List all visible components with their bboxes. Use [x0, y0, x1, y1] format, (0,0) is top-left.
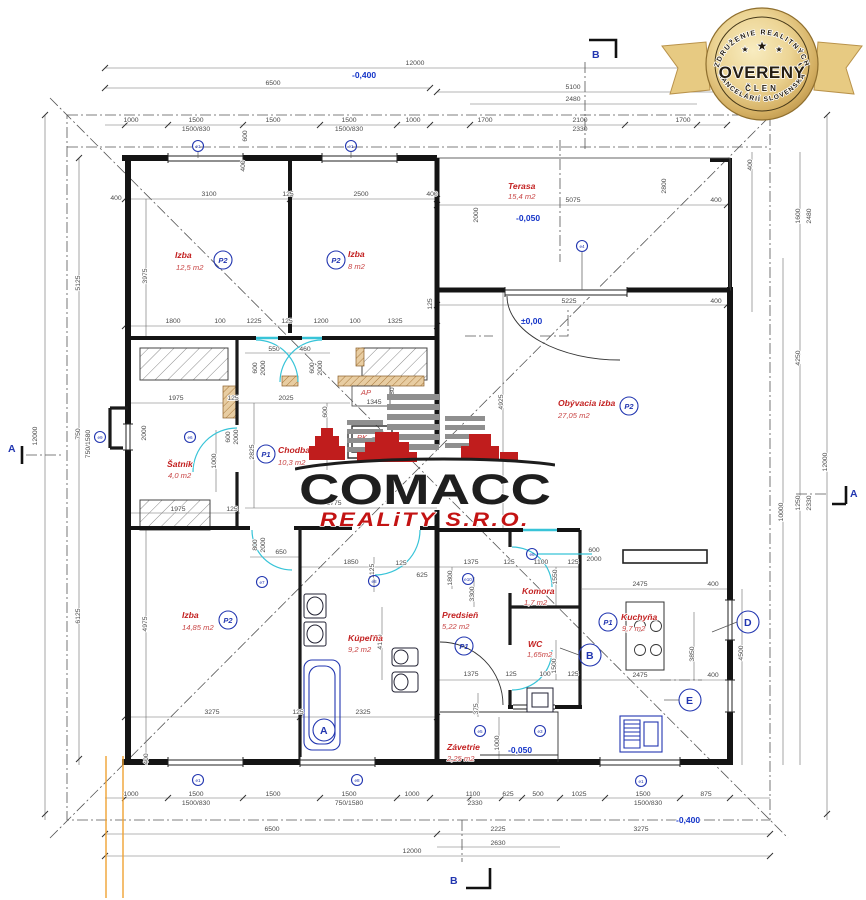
drawing-primitive [560, 648, 579, 655]
drawing-primitive [710, 160, 730, 290]
room-area: 1,65m2 [527, 650, 553, 659]
dim-label: 12000 [822, 452, 829, 471]
dim-label: 1500 [551, 658, 558, 673]
drawing-primitive [387, 394, 439, 400]
drawing-primitive [814, 42, 862, 94]
dim-label: 400 [426, 191, 438, 198]
drawing-primitive [623, 550, 707, 563]
dim-label: 375 [473, 703, 480, 715]
dim-label: 625 [502, 791, 514, 798]
drawing-primitive [365, 442, 409, 452]
room-area: 15,4 m2 [508, 192, 536, 201]
dim-label: 600 [252, 362, 259, 374]
drawing-primitive: e7 [259, 580, 265, 585]
dim-label: 1000 [123, 117, 138, 124]
dim-label: 2330 [467, 800, 482, 807]
badge-sub: ČLEN [745, 84, 779, 93]
dim-label: 1500/830 [634, 800, 663, 807]
dim-label: 3100 [201, 191, 216, 198]
dim-label: 2000 [473, 207, 480, 222]
dim-label: 400 [707, 581, 719, 588]
dim-label: 2475 [632, 581, 647, 588]
dim-label: 4250 [795, 350, 802, 365]
dim-label: 600 [242, 130, 249, 142]
dim-label: 1375 [463, 671, 478, 678]
dim-label: 1800 [165, 318, 180, 325]
drawing-primitive [437, 158, 730, 290]
room-area: 8 m2 [348, 262, 366, 271]
dim-label: 1500 [265, 117, 280, 124]
dim-label: 12000 [406, 60, 425, 67]
dim-label: 1500 [341, 117, 356, 124]
drawing-primitive: e8 [371, 579, 377, 584]
dim-label: 5075 [565, 197, 580, 204]
dim-label: 4500 [738, 645, 745, 660]
dim-label: 6500 [265, 80, 280, 87]
room-name: WC [528, 639, 543, 649]
comacc-watermark: COMACC REALiTY S.R.O. [295, 372, 555, 532]
drawing-primitive: e1 [348, 144, 354, 149]
dim-label: 2000 [260, 537, 267, 552]
room-area: 12,5 m2 [176, 263, 204, 272]
section-a-tub: A [320, 725, 328, 737]
dim-label: 400 [240, 160, 247, 172]
room-mark: P2 [624, 402, 634, 411]
dim-label: 6125 [75, 608, 82, 623]
drawing-primitive: e9 [97, 435, 103, 440]
dim-label: 125 [567, 559, 579, 566]
drawing-primitive [140, 500, 210, 530]
dim-label: 2100 [572, 117, 587, 124]
dim-label: 1850 [343, 559, 358, 566]
drawing-primitive [309, 446, 345, 460]
level-mark: -0,400 [676, 815, 700, 825]
room-area: 9,2 m2 [348, 645, 372, 654]
drawing-primitive [356, 348, 364, 366]
dim-label: 100 [539, 671, 551, 678]
dim-label: 650 [275, 549, 287, 556]
drawing-primitive [662, 42, 710, 94]
dim-label: 125 [281, 318, 293, 325]
dim-label: 2330 [806, 495, 813, 510]
dim-label: 5225 [561, 298, 576, 305]
dim-label: 1100 [534, 559, 549, 566]
dim-label: 1000 [404, 791, 419, 798]
room-mark: P2 [331, 256, 341, 265]
drawing-primitive [394, 674, 408, 690]
dim-label: 400 [110, 195, 122, 202]
drawing-primitive [387, 404, 439, 410]
dim-label: 1500 [188, 117, 203, 124]
drawing-primitive: e1 [195, 144, 201, 149]
dim-label: 500 [532, 791, 544, 798]
dim-label: 125 [226, 506, 238, 513]
drawing-primitive [307, 597, 323, 615]
drawing-primitive [532, 693, 548, 707]
room-area: 4,0 m2 [168, 471, 192, 480]
dim-label: 10000 [778, 502, 785, 521]
dim-label: 1600 [795, 208, 802, 223]
dim-label: 1500 [265, 791, 280, 798]
dim-label: 125 [227, 395, 239, 402]
room-name: Kúpeľňa [348, 633, 383, 643]
level-mark: -0,050 [508, 745, 532, 755]
dim-label: 125 [427, 298, 434, 310]
room-name: Závetrie [446, 742, 480, 752]
badge-word: OVERENÝ [719, 63, 806, 82]
section-b-interior: B [586, 650, 594, 662]
section-e-mark: E [686, 695, 693, 707]
drawing-primitive: e1 [195, 778, 201, 783]
dim-label: 1100 [466, 791, 481, 798]
room-name: Izba [348, 249, 365, 259]
drawing-primitive: ★ [741, 45, 748, 54]
drawing-primitive [832, 486, 846, 504]
dim-label: 2000 [141, 425, 148, 440]
dim-label: 125 [395, 560, 407, 567]
dim-label: 1000 [405, 117, 420, 124]
dim-label: 1025 [571, 791, 586, 798]
drawing-primitive [315, 436, 339, 446]
drawing-primitive [644, 722, 658, 746]
drawing-primitive [507, 296, 620, 360]
level-mark: -0,400 [352, 70, 376, 80]
dim-label: 3975 [142, 268, 149, 283]
drawing-primitive [123, 424, 133, 450]
dim-label: 5100 [565, 84, 580, 91]
room-area: 9,7 m2 [622, 624, 646, 633]
level-mark: ±0,00 [521, 316, 542, 326]
drawing-primitive [375, 432, 399, 442]
dim-label: 2330 [572, 126, 587, 133]
dim-label: 12000 [32, 426, 39, 445]
dim-label: 125 [505, 671, 517, 678]
dim-label: 400 [707, 672, 719, 679]
drawing-primitive [307, 625, 323, 643]
drawing-primitive [347, 420, 383, 425]
dim-label: 1975 [170, 506, 185, 513]
room-name: Obývacia izba [558, 398, 616, 408]
dim-label: 100 [214, 318, 226, 325]
room-mark: P2 [218, 256, 228, 265]
dim-label: 2325 [355, 709, 370, 716]
drawing-primitive [651, 621, 662, 632]
dim-label: 460 [299, 346, 311, 353]
floorplan-page: 12000 6500 1000 1500 1500/830 1500 1500 … [0, 0, 866, 900]
drawing-primitive: e3 [537, 729, 543, 734]
drawing-primitive: e8 [354, 778, 360, 783]
dim-label: 1000 [123, 791, 138, 798]
drawing-primitive [651, 645, 662, 656]
dim-label: 625 [416, 572, 428, 579]
room-name: Izba [182, 610, 199, 620]
drawing-primitive: e6 [529, 552, 535, 557]
dim-label: 3275 [204, 709, 219, 716]
dim-label: 750 [75, 428, 82, 440]
drawing-primitive [394, 650, 408, 664]
drawing-primitive [387, 424, 439, 430]
room-mark: P1 [459, 642, 468, 651]
dim-label: 400 [143, 753, 150, 765]
dim-label: 2480 [806, 208, 813, 223]
drawing-primitive [469, 434, 491, 446]
dim-label: 2800 [661, 178, 668, 193]
room-name: Predsieň [442, 610, 478, 620]
dim-label: 3275 [633, 826, 648, 833]
dim-label: 1325 [387, 318, 402, 325]
dim-label: 2000 [586, 556, 601, 563]
drawing-primitive [445, 425, 485, 430]
room-mark: P2 [223, 616, 233, 625]
room-name: Komora [522, 586, 555, 596]
drawing-primitive [725, 680, 735, 712]
room-area: 27,05 m2 [557, 411, 590, 420]
section-b-bottom: B [450, 875, 458, 887]
dim-label: 1000 [211, 453, 218, 468]
room-area: 14,85 m2 [182, 623, 214, 632]
axis-lines-orange [106, 756, 123, 898]
dim-label: 600 [225, 431, 232, 443]
dim-label: 400 [747, 159, 754, 171]
drawing-primitive [387, 414, 439, 420]
dim-label: 125 [282, 191, 294, 198]
room-area: 5,22 m2 [442, 622, 470, 631]
room-name: Izba [175, 250, 192, 260]
drawing-primitive: e10 [464, 577, 472, 582]
dim-label: 1550 [552, 569, 559, 584]
dim-label: 6500 [264, 826, 279, 833]
dim-label: 2480 [565, 96, 580, 103]
section-b-top: B [592, 49, 600, 61]
dim-label: 1500/830 [182, 800, 211, 807]
dim-label: 1000 [494, 735, 501, 750]
comacc-buildings [309, 394, 518, 462]
drawing-primitive: e6 [187, 435, 193, 440]
section-a-left: A [8, 443, 16, 455]
drawing-primitive [375, 530, 420, 575]
dim-label: 100 [349, 318, 361, 325]
drawing-primitive: ★ [757, 39, 768, 53]
dim-label: 1500/830 [182, 126, 211, 133]
drawing-primitive [635, 645, 646, 656]
dim-label: 3300 [469, 586, 476, 601]
dim-label: 1500 [341, 791, 356, 798]
dim-label: 1225 [246, 318, 261, 325]
dim-label: 1975 [168, 395, 183, 402]
section-d-mark: D [744, 617, 752, 629]
dim-label: 2225 [490, 826, 505, 833]
verified-badge: ZDRUŽENIE REALITNÝCH KANCELÁRIÍ SLOVENSK… [660, 2, 864, 126]
dim-label: 750/1580 [85, 430, 92, 459]
room-area: 2,25 m2 [446, 754, 475, 763]
dim-label: 2025 [278, 395, 293, 402]
dim-label: 1500 [635, 791, 650, 798]
drawing-primitive [445, 416, 485, 421]
dim-label: 2630 [490, 840, 505, 847]
dim-label: 2500 [353, 191, 368, 198]
drawing-primitive [321, 428, 333, 436]
comacc-subtitle: REALiTY S.R.O. [320, 510, 530, 531]
dim-label: 1250 [795, 495, 802, 510]
dim-label: 875 [700, 791, 712, 798]
dim-label: 1500 [188, 791, 203, 798]
dim-label: 800 [252, 539, 259, 551]
dim-label: 1700 [477, 117, 492, 124]
dim-label: 2000 [260, 360, 267, 375]
dim-label: 1375 [463, 559, 478, 566]
drawing-primitive [466, 868, 490, 888]
dim-label: 1800 [447, 570, 454, 585]
comacc-brand: COMACC [299, 466, 551, 514]
dim-label: 125 [292, 709, 304, 716]
drawing-primitive: e4 [579, 244, 585, 249]
drawing-primitive: ★ [775, 45, 782, 54]
drawing-primitive [620, 716, 662, 752]
dim-label: 2825 [249, 444, 256, 459]
dim-label: 1500/830 [335, 126, 364, 133]
drawing-primitive [223, 386, 236, 418]
dim-label: 125 [567, 671, 579, 678]
dim-label: 550 [268, 346, 280, 353]
dim-label: 750/1580 [335, 800, 364, 807]
dim-label: 400 [710, 197, 722, 204]
drawing-primitive [624, 720, 640, 748]
drawing-primitive [725, 600, 735, 640]
room-name: Šatník [167, 458, 194, 469]
dim-label: 125 [503, 559, 515, 566]
dim-label: 2000 [233, 429, 240, 444]
dim-label: 12000 [403, 848, 422, 855]
dim-label: 4975 [142, 616, 149, 631]
dim-label: 2475 [632, 672, 647, 679]
room-name: Kuchyňa [621, 612, 658, 622]
room-mark: P1 [603, 618, 612, 627]
dim-label: 1200 [313, 318, 328, 325]
level-mark: -0,050 [516, 213, 540, 223]
dim-label: 3850 [689, 646, 696, 661]
room-name: Terasa [508, 181, 536, 191]
dim-label: 400 [710, 298, 722, 305]
dim-label: 600 [588, 547, 600, 554]
drawing-primitive [140, 348, 228, 380]
room-mark: P1 [261, 450, 270, 459]
section-a-right: A [850, 488, 858, 500]
drawing-primitive: e1 [638, 779, 644, 784]
dim-label: 5125 [75, 275, 82, 290]
drawing-primitive: e5 [477, 729, 483, 734]
room-area: 1,7 m2 [524, 598, 548, 607]
